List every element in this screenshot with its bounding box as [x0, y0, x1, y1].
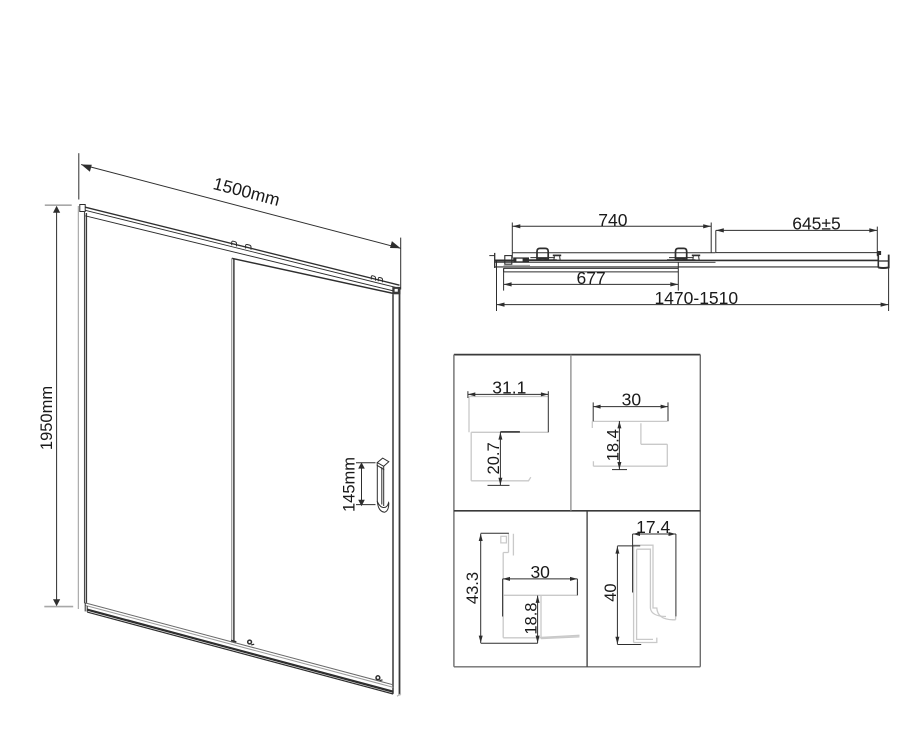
svg-text:31.1: 31.1: [492, 378, 526, 398]
svg-text:677: 677: [576, 268, 605, 288]
svg-text:18.4: 18.4: [605, 429, 623, 461]
svg-text:40: 40: [602, 583, 620, 601]
svg-text:17.4: 17.4: [636, 517, 670, 537]
svg-text:20.7: 20.7: [485, 442, 503, 474]
svg-text:43.3: 43.3: [464, 572, 482, 604]
svg-text:1950mm: 1950mm: [38, 386, 56, 450]
svg-text:30: 30: [530, 562, 550, 582]
svg-text:1470-1510: 1470-1510: [654, 288, 738, 308]
svg-text:740: 740: [598, 210, 627, 230]
svg-text:645±5: 645±5: [792, 214, 841, 234]
svg-text:145mm: 145mm: [341, 457, 359, 512]
svg-text:30: 30: [622, 389, 642, 409]
svg-text:18.8: 18.8: [522, 603, 540, 635]
